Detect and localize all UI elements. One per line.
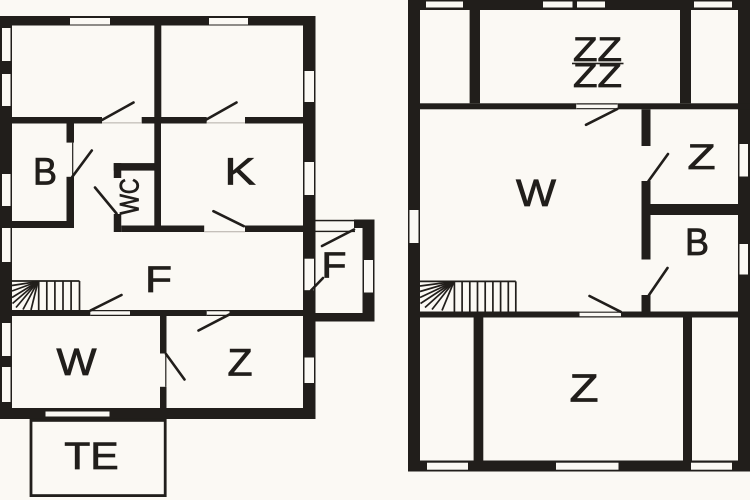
svg-text:Z: Z bbox=[570, 368, 599, 411]
svg-text:F: F bbox=[322, 245, 347, 286]
svg-text:B: B bbox=[33, 152, 57, 194]
svg-text:Z: Z bbox=[688, 138, 716, 177]
svg-text:ZZ: ZZ bbox=[573, 57, 622, 95]
svg-text:B: B bbox=[685, 222, 709, 264]
svg-text:WC: WC bbox=[115, 178, 145, 215]
svg-text:K: K bbox=[225, 152, 256, 194]
svg-text:W: W bbox=[57, 342, 97, 384]
svg-text:F: F bbox=[145, 259, 172, 300]
svg-text:W: W bbox=[516, 173, 556, 215]
svg-text:TE: TE bbox=[64, 436, 119, 478]
svg-text:Z: Z bbox=[228, 343, 253, 385]
